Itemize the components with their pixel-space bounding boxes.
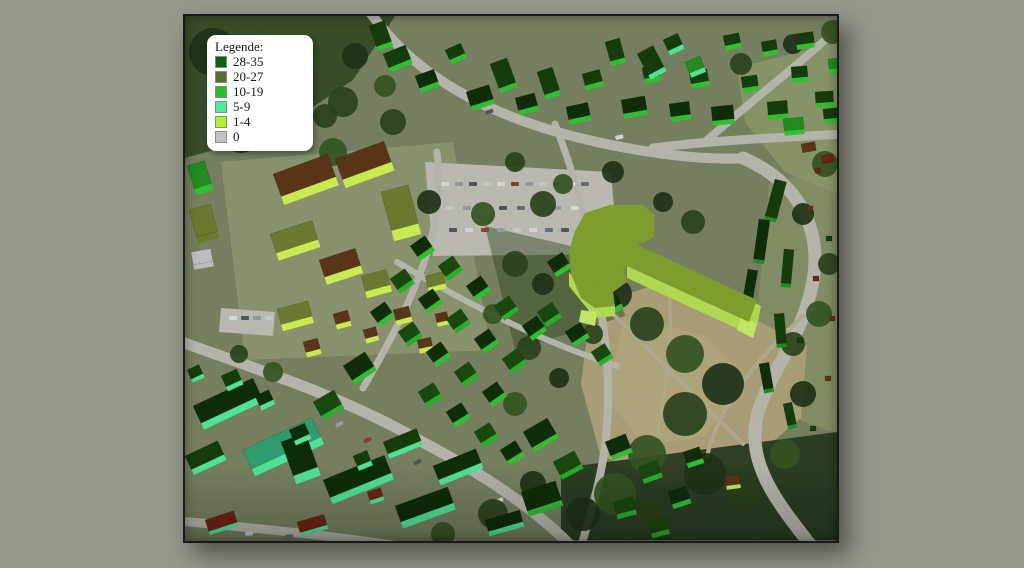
legend-item: 0	[215, 129, 299, 144]
legend-color-swatch	[215, 131, 227, 143]
legend-item-label: 20-27	[233, 69, 263, 85]
legend-color-swatch	[215, 116, 227, 128]
legend-title: Legende:	[215, 39, 299, 54]
desktop-background: { "page": { "background": "#96988c" }, "…	[0, 0, 1024, 568]
legend-item: 20-27	[215, 69, 299, 84]
legend-item-label: 28-35	[233, 54, 263, 70]
legend-item: 28-35	[215, 54, 299, 69]
legend-item-label: 0	[233, 129, 240, 145]
legend-color-swatch	[215, 71, 227, 83]
legend-color-swatch	[215, 101, 227, 113]
legend-item: 1-4	[215, 114, 299, 129]
legend-color-swatch	[215, 56, 227, 68]
map-viewport[interactable]: Legende: 28-35 20-27 10-19 5-9 1-4 0	[183, 14, 839, 543]
legend-color-swatch	[215, 86, 227, 98]
legend: Legende: 28-35 20-27 10-19 5-9 1-4 0	[207, 35, 313, 151]
legend-item-label: 10-19	[233, 84, 263, 100]
legend-item: 5-9	[215, 99, 299, 114]
legend-item: 10-19	[215, 84, 299, 99]
legend-item-label: 5-9	[233, 99, 250, 115]
legend-item-label: 1-4	[233, 114, 250, 130]
